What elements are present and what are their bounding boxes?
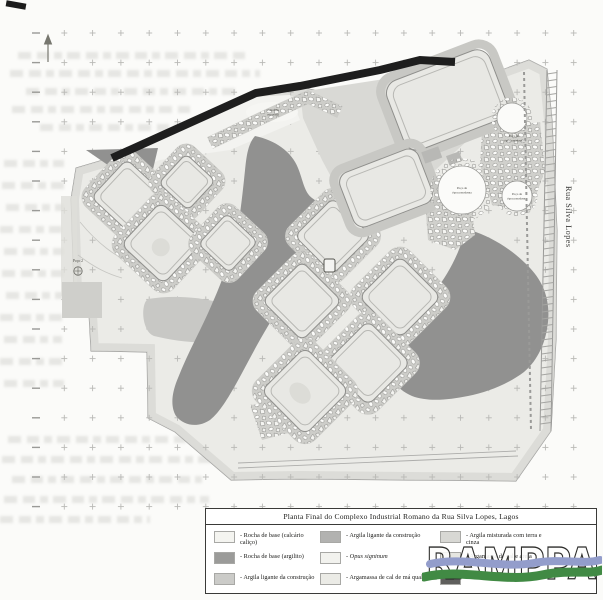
modern-well: Poço de época moderna [435,163,489,217]
legend-label: - Opus signinum [346,552,388,561]
legend-item: - Rocha de base (argilito) [214,552,316,565]
legend-label: - Argila ligante da construção [240,573,314,582]
legend-label: - Rocha de base (calcário caliço) [240,531,316,547]
svg-text:época moderna: época moderna [452,191,472,195]
svg-text:Poço 2: Poço 2 [73,259,83,263]
legend-swatch [320,552,341,564]
clay-patch [62,282,102,318]
legend-item: - Opus signinum [320,552,438,565]
legend-swatch [320,573,341,585]
clay-strip [61,196,77,296]
ramppa-logo: RAMPPA [422,535,602,597]
legend-item: - Argila ligante da construção [214,573,316,586]
legend-swatch [214,552,235,564]
scan-corner-mark [6,0,27,9]
legend-item: - Argila ligante da construção [320,531,438,544]
svg-text:Poço de: Poço de [509,134,520,138]
legend-title: Planta Final do Complexo Industrial Roma… [206,509,596,525]
logo-wave-blue [430,560,600,565]
unexcavated-label: Zona não escavada [267,108,279,117]
legend-label: - Rocha de base (argilito) [240,552,304,561]
svg-text:época moderna: época moderna [504,139,524,143]
svg-text:Poço de: Poço de [457,186,468,190]
svg-text:escavada: escavada [267,113,279,117]
svg-text:Poço de: Poço de [512,192,523,196]
legend-item: - Argamassa de cal de má qualidade [320,573,438,586]
legend-label: - Argila ligante da construção [346,531,420,540]
legend-swatch [320,531,341,543]
modern-well: Poço de época moderna [500,179,534,213]
small-feature-box [324,259,335,272]
well-icon [74,267,82,275]
street-label: Rua Silva Lopes [564,186,573,248]
scanned-plan-page: { "page": { "paper_color": "#fbfbf9" }, … [0,0,603,600]
svg-text:época moderna: época moderna [507,197,527,201]
legend-item: - Rocha de base (calcário caliço) [214,531,316,544]
svg-text:Zona não: Zona não [267,108,279,112]
north-arrow-icon [45,35,52,62]
legend-swatch [214,573,235,585]
legend-swatch [214,531,235,543]
